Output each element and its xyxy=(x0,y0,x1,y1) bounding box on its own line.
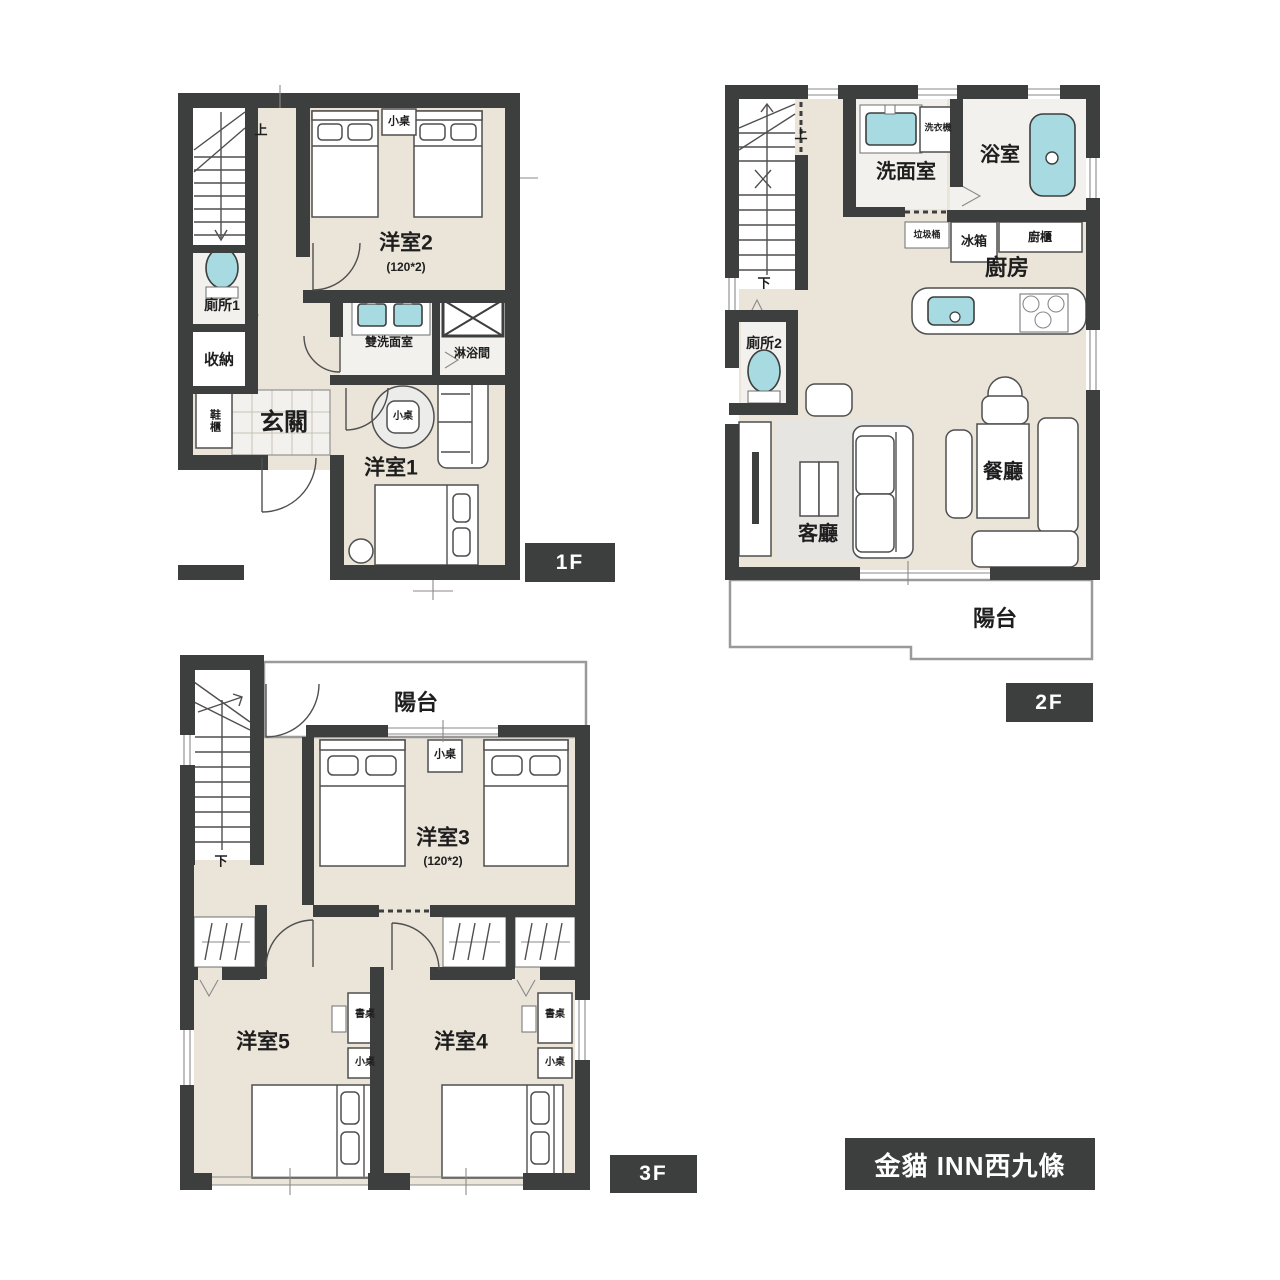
stairs-down-label-3f: 下 xyxy=(214,855,227,868)
storage-label: 收納 xyxy=(204,353,234,368)
floor3-tag: 3F xyxy=(610,1155,697,1193)
room2-label: 洋室2 xyxy=(379,233,433,254)
small-table-label-room1: 小桌 xyxy=(393,412,413,422)
entrance-label: 玄關 xyxy=(260,411,308,435)
stool-room1 xyxy=(349,539,373,563)
stairs-down-label-2f: 下 xyxy=(757,277,770,290)
shower-room-label: 淋浴間 xyxy=(454,347,490,359)
room1-label: 洋室1 xyxy=(364,458,418,479)
small-table-label-room5: 小桌 xyxy=(355,1058,375,1068)
room5-label: 洋室5 xyxy=(236,1032,290,1053)
stairs-up-label-2f: 上 xyxy=(794,128,807,141)
kitchen-island xyxy=(912,288,1086,334)
sofa-living xyxy=(853,426,913,558)
washroom-sink xyxy=(860,105,922,153)
toilet2-fixture xyxy=(748,350,780,403)
room3-size-label: (120*2) xyxy=(423,855,462,867)
trash-bin-label: 垃圾桶 xyxy=(913,231,940,240)
floor2-tag: 2F xyxy=(1006,683,1093,722)
washroom-label: 洗面室 xyxy=(876,162,936,182)
desk-label-room5: 書桌 xyxy=(355,1010,375,1020)
bathroom-label: 浴室 xyxy=(980,145,1020,165)
balcony-label-3f: 陽台 xyxy=(394,692,438,714)
room3-label: 洋室3 xyxy=(416,828,470,849)
closet-right-1 xyxy=(443,917,506,967)
small-table-label-room4: 小桌 xyxy=(545,1058,565,1068)
washing-machine-label: 洗衣機 xyxy=(924,124,951,133)
double-washroom-label: 雙洗面室 xyxy=(365,336,413,348)
bed-room2-left xyxy=(312,111,378,217)
room4-label: 洋室4 xyxy=(434,1032,488,1053)
sofa-room1 xyxy=(438,376,488,468)
toilet2-label: 廁所2 xyxy=(746,336,782,350)
balcony-label-2f: 陽台 xyxy=(973,608,1017,630)
toilet1-label: 廁所1 xyxy=(204,298,240,312)
room2-size-label: (120*2) xyxy=(386,261,425,273)
stairs-up-label-1f: 上 xyxy=(254,124,267,137)
small-table-label-room3: 小桌 xyxy=(434,750,456,761)
kitchen-label: 廚房 xyxy=(985,257,1029,279)
shoe-cabinet-label: 鞋櫃 xyxy=(209,409,220,433)
fridge-label: 冰箱 xyxy=(961,235,987,248)
floorplan-canvas xyxy=(0,0,1280,1280)
desk-label-room4: 書桌 xyxy=(545,1010,565,1020)
floor3-plan xyxy=(180,655,590,1195)
page-title: 金貓 INN西九條 xyxy=(845,1138,1095,1190)
floorplan-page: { "title": "金貓 INN西九條", "floor1": { "tag… xyxy=(0,0,1280,1280)
floor1-plan xyxy=(178,85,538,600)
small-table-label-room2: 小桌 xyxy=(388,117,410,128)
tv-stand xyxy=(739,422,771,556)
living-room-label: 客廳 xyxy=(798,524,838,544)
balcony-2f xyxy=(730,580,1092,659)
coffee-table xyxy=(800,462,838,516)
bed-room1 xyxy=(375,485,478,565)
dining-room-label: 餐廳 xyxy=(983,462,1023,482)
bed-room3-right xyxy=(484,740,568,866)
floor1-tag: 1F xyxy=(525,543,615,582)
bed-room3-left xyxy=(320,740,405,866)
pouf-table xyxy=(806,384,852,416)
bed-room2-right xyxy=(414,111,482,217)
kitchen-cabinet-label: 廚櫃 xyxy=(1028,231,1052,243)
